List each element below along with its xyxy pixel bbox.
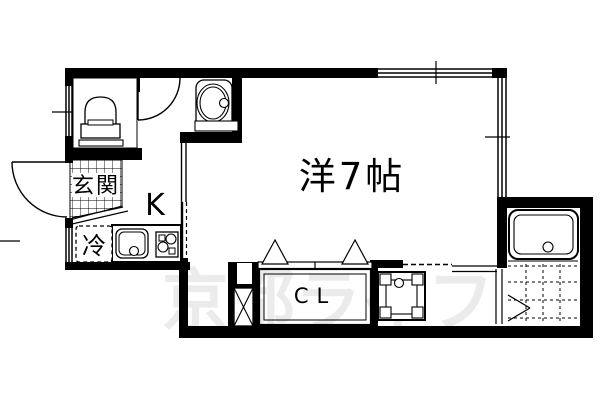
bathtub-icon <box>509 210 578 259</box>
refrigerator-label: 冷 <box>82 232 106 260</box>
genkan-label: 玄関 <box>72 174 120 199</box>
floor-plan: 京都ライフ <box>0 0 600 400</box>
main-room-label: 洋7帖 <box>299 155 406 198</box>
floor-plan-drawing: 京都ライフ <box>0 0 600 400</box>
refrigerator-box: 冷 <box>76 226 112 262</box>
pipe-space-niche <box>237 263 252 284</box>
washing-machine-pan <box>378 272 425 320</box>
bathroom <box>496 208 580 326</box>
faucet-icon <box>395 279 404 288</box>
kitchen-counter <box>112 225 181 262</box>
washbasin-icon <box>195 80 238 131</box>
closet-label: CL <box>294 284 336 308</box>
kitchen-label: K <box>145 188 166 223</box>
